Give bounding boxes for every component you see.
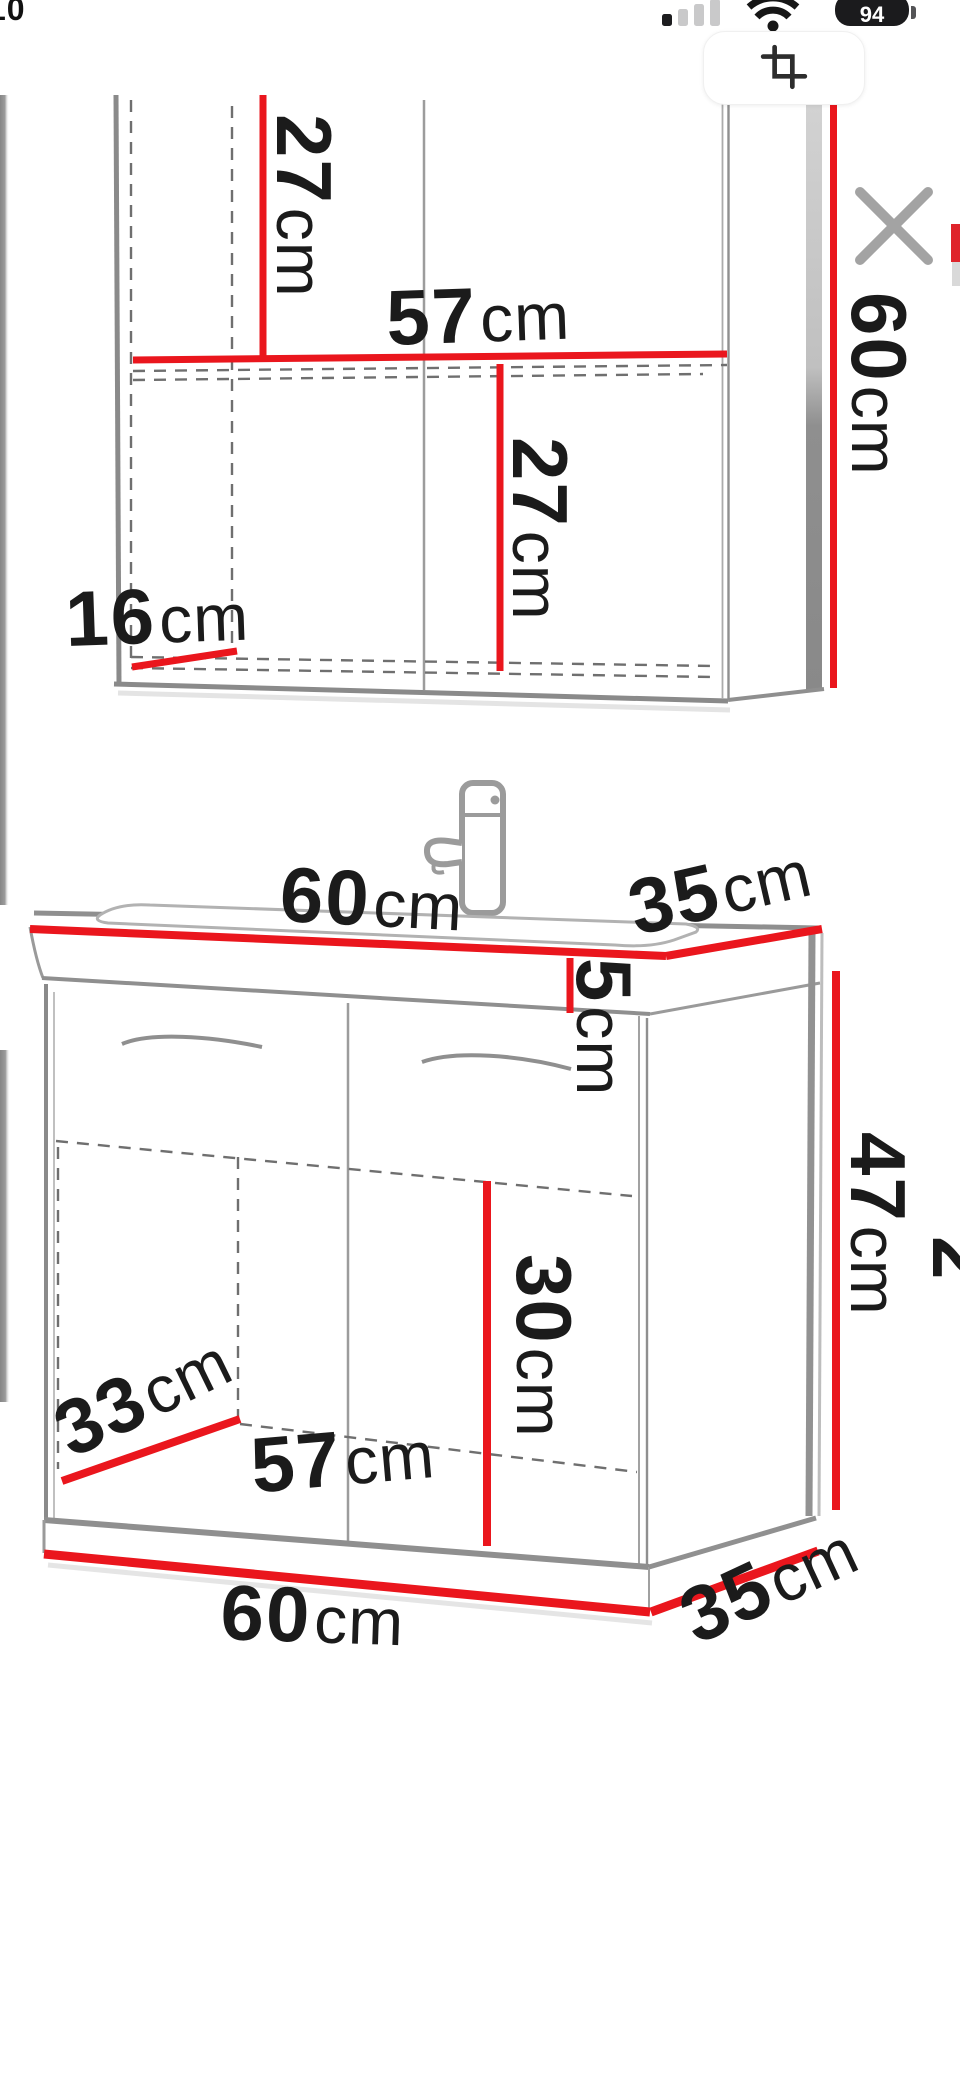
crop-button[interactable] (703, 31, 865, 105)
dimension-label-vanity-inner-height: 30cm (507, 1254, 580, 1438)
dimension-label-vanity-bottom-width: 60cm (219, 1576, 405, 1656)
signal-icon (662, 0, 720, 26)
battery-nub (911, 6, 916, 19)
dimension-label-vanity-inner-width: 57cm (248, 1414, 437, 1503)
photo-viewer-screen: 27cm 57cm 27cm 16cm 60cm 60cm 35cm 5cm 3… (0, 0, 960, 2081)
dimension-label-mirror-depth-right: 27cm (503, 437, 576, 621)
dimension-label-mirror-height: 60cm (842, 292, 915, 476)
crop-icon (759, 43, 809, 93)
dimension-label-mirror-shelf-depth: 16cm (64, 577, 250, 657)
wifi-icon (749, 0, 797, 32)
close-icon (860, 192, 928, 260)
dimension-label-adjacent-partial: 2 (923, 1236, 960, 1284)
battery-badge: 94 (835, 0, 909, 26)
dimension-label-vanity-height: 47cm (841, 1132, 914, 1316)
wall-edge-strip-bottom (0, 1050, 10, 1402)
adjacent-image-sliver[interactable] (951, 224, 960, 286)
dimension-label-vanity-top-width: 60cm (278, 858, 465, 941)
dimension-label-mirror-inner-width: 57cm (385, 276, 571, 356)
dimension-label-vanity-top-thickness: 5cm (567, 958, 640, 1096)
wall-edge-strip-top (0, 95, 9, 905)
dimension-label-mirror-depth-left: 27cm (267, 114, 340, 298)
close-button[interactable] (850, 182, 938, 270)
